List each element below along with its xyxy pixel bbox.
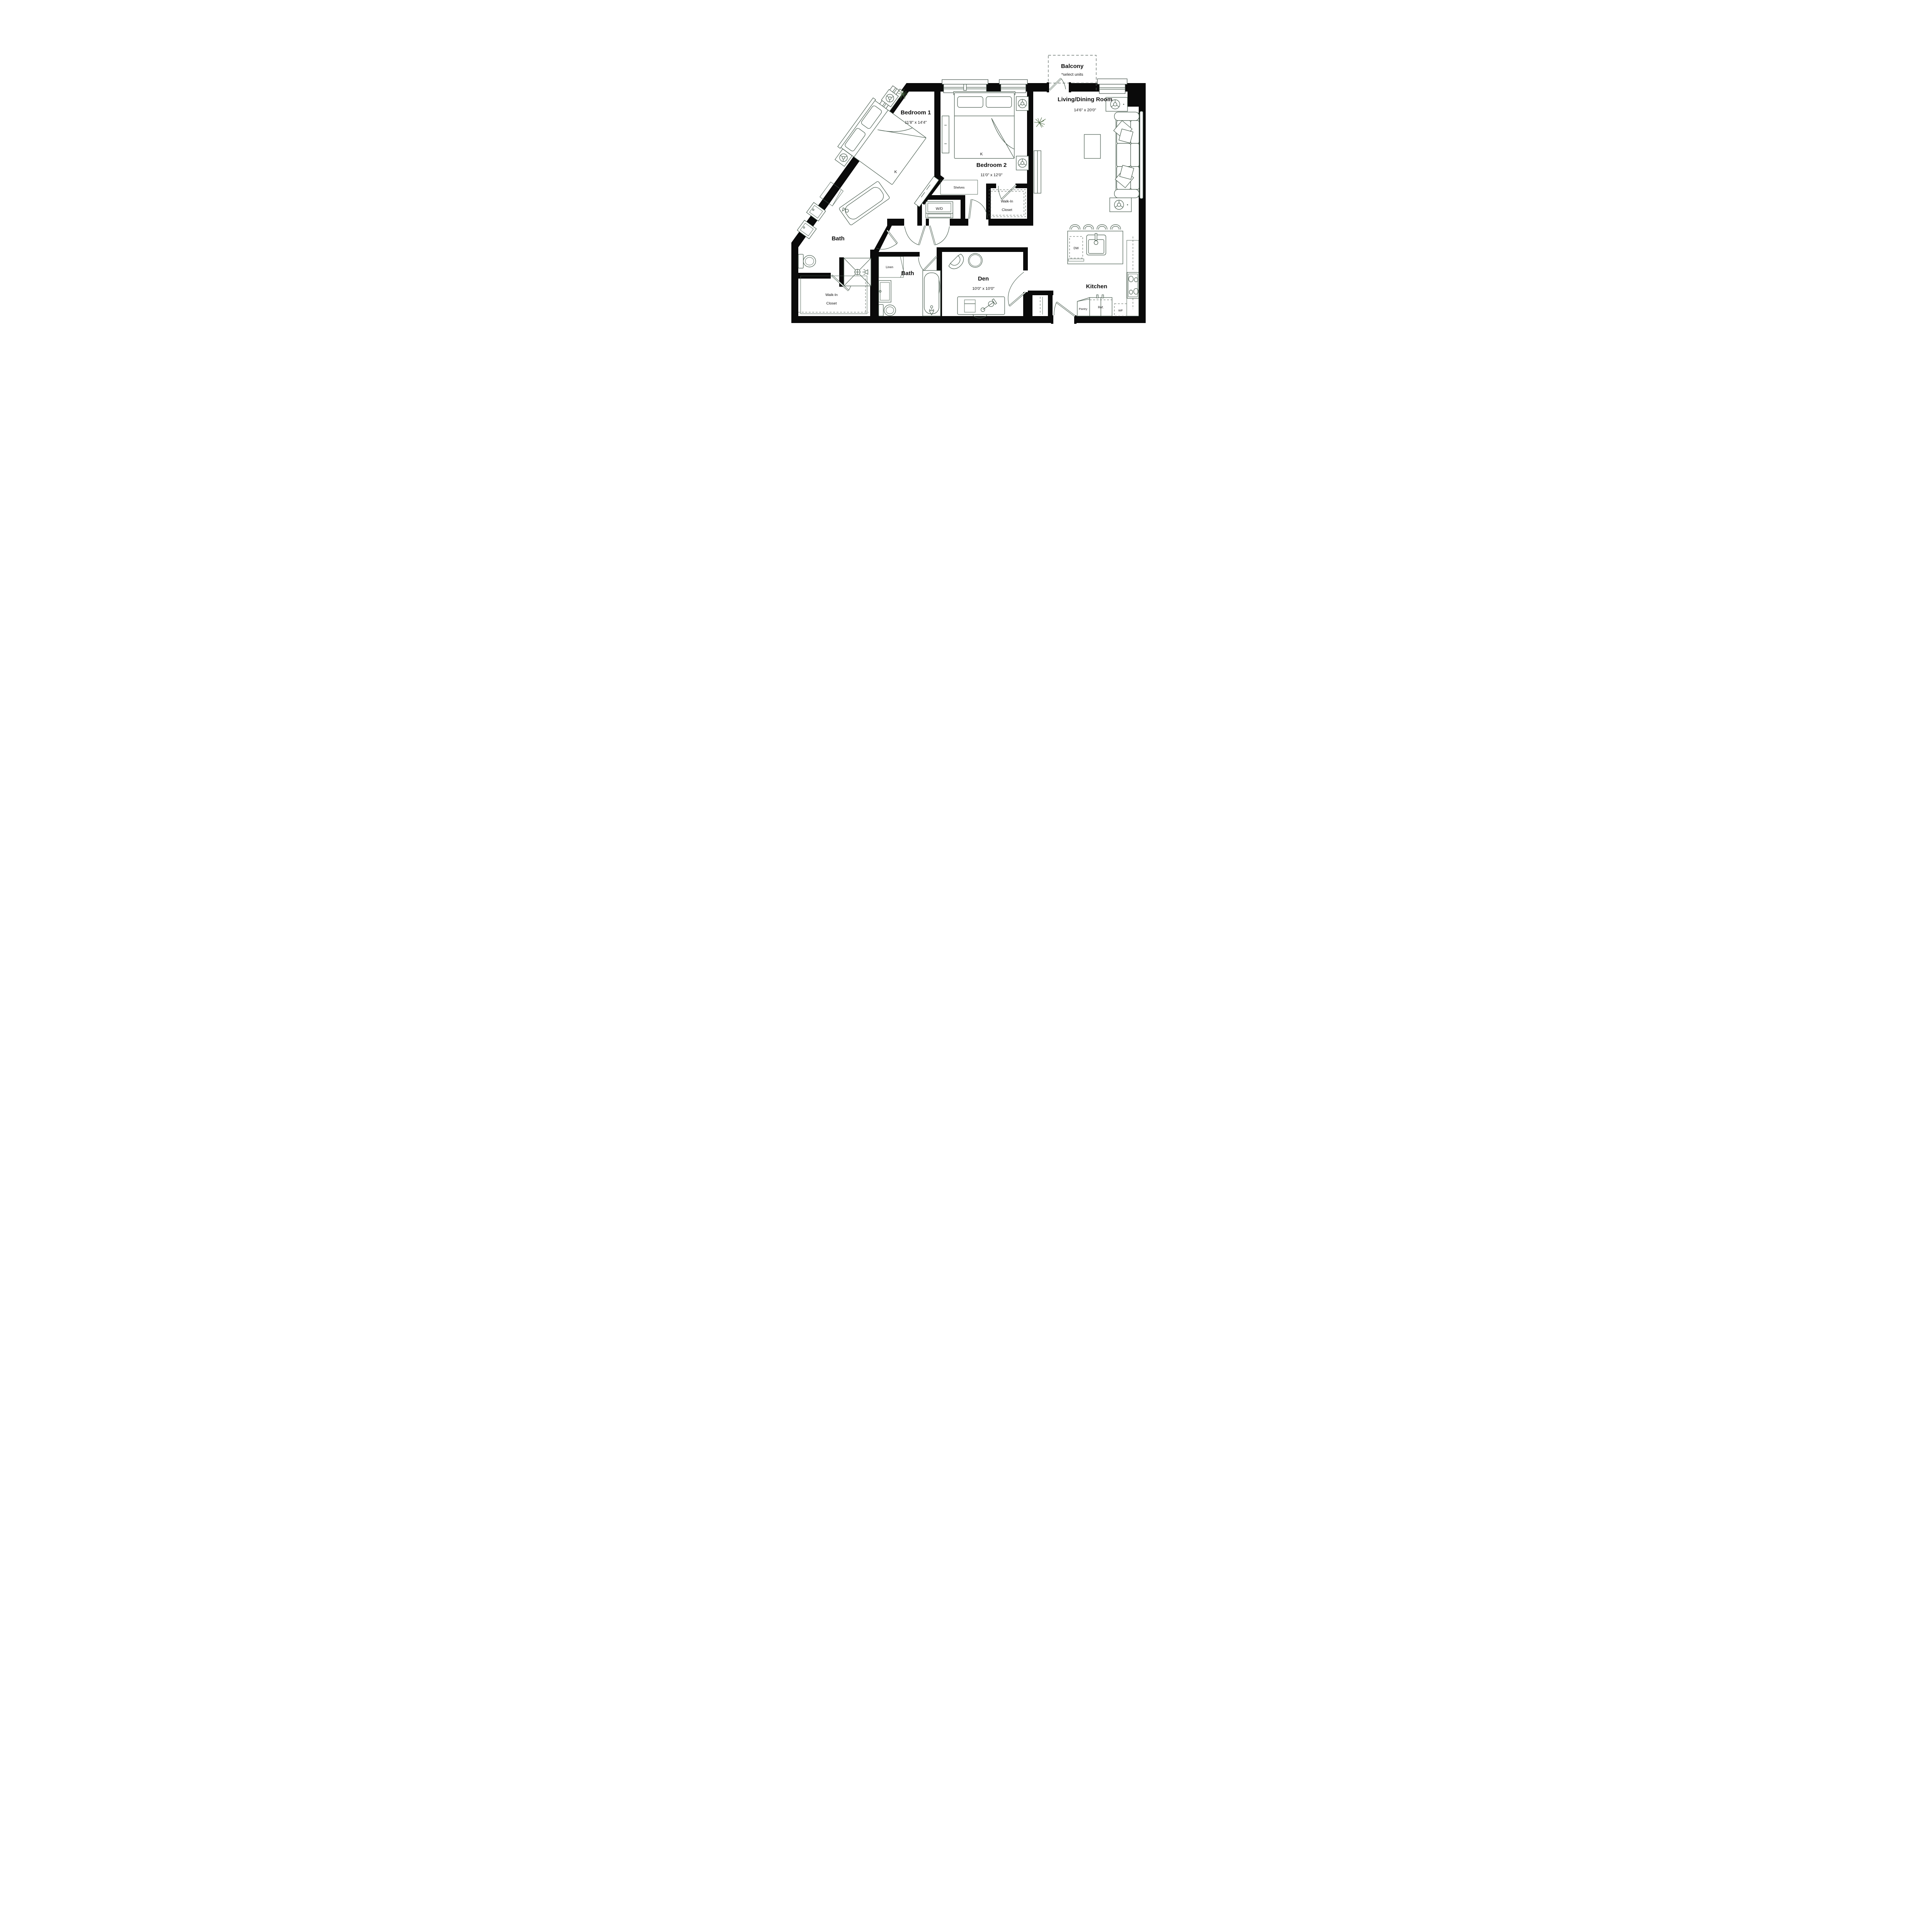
dishwasher-label: DW [1073,247,1079,250]
toilet-2 [879,304,896,316]
sofa [1114,111,1143,199]
bedroom2-bed-size: K [980,152,983,156]
shelves-niche: Shelves [940,180,978,194]
window-bedroom2-b [999,80,1027,93]
pantry: Pantry [1077,298,1090,316]
kitchen-label: Kitchen [1086,283,1107,290]
washer-dryer-label: W/D [936,207,943,211]
bath2: Linen Bath [879,257,940,316]
bathtub-1 [839,181,890,225]
nightstand-bedroom2-b [1016,156,1029,170]
coffee-table [1084,134,1100,158]
kitchen-island: DW [1068,224,1123,264]
balcony-door [1047,78,1071,92]
bedroom1-dims: 11'8" x 14'4" [905,120,927,125]
bar-stools [1070,224,1121,230]
refrigerator-label: Ref. [1098,306,1104,309]
dresser-bedroom2 [942,116,949,153]
bath2-label: Bath [901,270,914,277]
balcony-note: *select units [1061,72,1083,77]
den-dims: 10'0" x 10'0" [972,286,995,291]
washer-dryer-closet: W/D [926,202,953,218]
floor-plan-drawing: Balcony *select units [773,0,1159,386]
nightstand-bedroom2-a [1016,97,1029,111]
walkin1-label-2: Closet [827,301,837,306]
wine-fridge-label: WF [1118,309,1123,312]
linen-closet-2: Linen [879,257,903,277]
kitchen-sink [1087,233,1106,255]
door-bath2 [918,257,937,270]
balcony-label: Balcony [1061,63,1084,70]
side-table-b [1110,198,1131,212]
door-walkin2 [998,185,1016,199]
living-room: Living/Dining Room 14'6" x 20'0" [1034,96,1143,212]
wine-fridge: WF [1114,304,1127,316]
bedroom1-bed-size: K [894,170,897,174]
pantry-label: Pantry [1079,307,1087,311]
walkin2-label-1: Walk-In [1001,199,1013,204]
stove [1127,272,1139,298]
bedroom2-label: Bedroom 2 [976,162,1007,168]
bedroom1-label: Bedroom 1 [901,109,931,116]
shelves-label: Shelves [954,186,964,189]
walkin1-label-1: Walk-In [825,293,838,297]
den: Den 10'0" x 10'0" [948,253,1005,318]
bed-king-2 [954,92,1015,158]
entry-closet [1040,297,1043,315]
refrigerator: Ref. [1090,295,1112,316]
living-dims: 14'6" x 20'0" [1074,108,1096,112]
door-bedroom1 [905,226,925,245]
door-entry [1051,302,1077,324]
den-desk [957,297,1005,318]
window-living [1097,79,1127,94]
den-side-table [968,253,982,267]
floor-plan-page: Balcony *select units [773,0,1159,386]
living-label: Living/Dining Room [1058,96,1112,103]
plant-living [1034,117,1046,128]
kitchen-counter [1127,236,1139,316]
door-bedroom2 [969,199,988,219]
vanity-sink-2 [879,281,891,302]
den-armchair [948,253,967,272]
linen2-label: Linen [886,265,893,269]
bathtub-2 [923,270,940,316]
walkin2-label-2: Closet [1002,208,1012,212]
bedroom2: Bedroom 2 11'0" x 12'0" K [942,92,1029,177]
media-console [1034,151,1041,193]
door-den [1008,272,1026,306]
bath1-label: Bath [832,235,844,242]
kitchen: DW [1068,224,1139,316]
door-washer-dryer [930,226,949,245]
shower-1 [844,258,871,286]
toilet-1 [798,254,816,268]
window-bedroom2-a [942,80,988,93]
den-label: Den [978,276,989,282]
bedroom2-dims: 11'0" x 12'0" [981,173,1003,177]
